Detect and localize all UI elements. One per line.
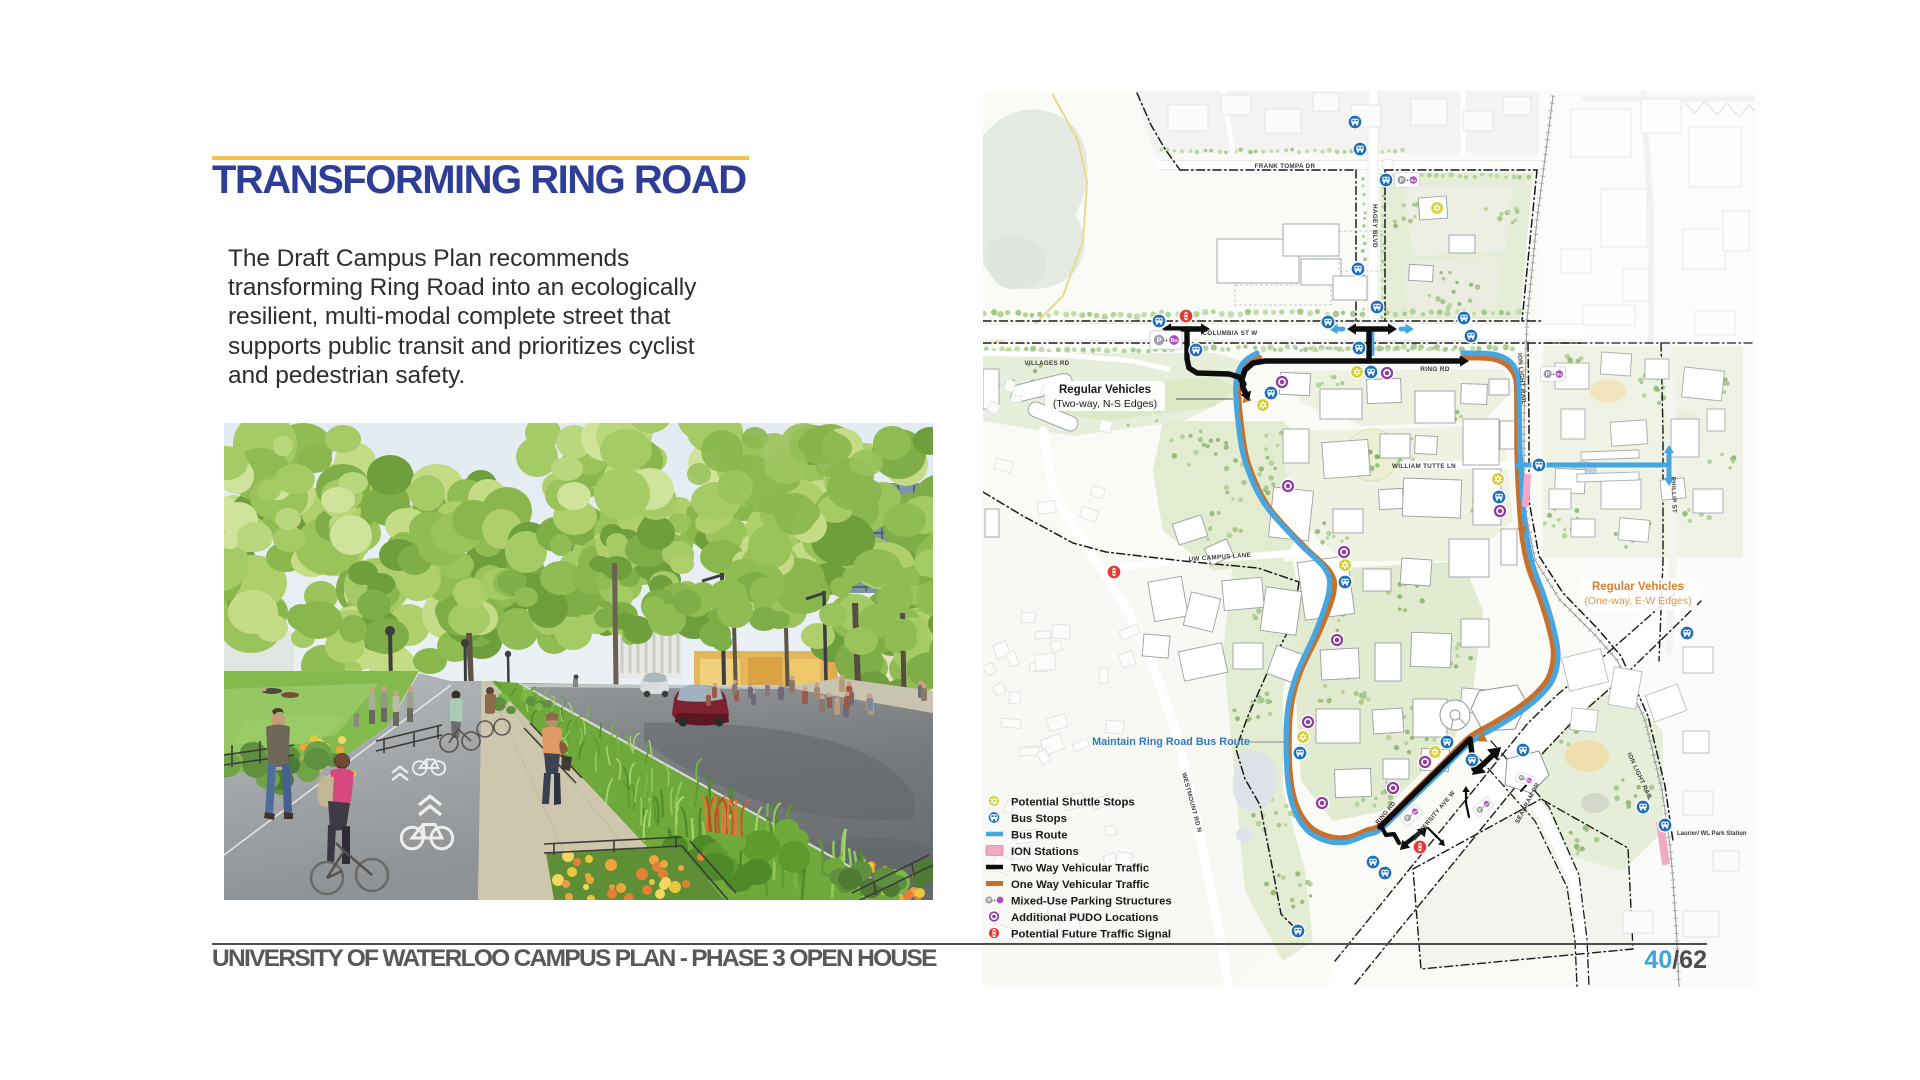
svg-text:Bus Stops: Bus Stops xyxy=(1011,813,1067,825)
svg-text:Regular Vehicles: Regular Vehicles xyxy=(1059,384,1151,396)
svg-text:Additional PUDO Locations: Additional PUDO Locations xyxy=(1011,912,1159,924)
svg-text:Potential Future Traffic Signa: Potential Future Traffic Signal xyxy=(1011,929,1171,941)
svg-text:WILLIAM TUTTE LN: WILLIAM TUTTE LN xyxy=(1392,463,1456,470)
svg-text:One Way Vehicular Traffic: One Way Vehicular Traffic xyxy=(1011,879,1149,891)
svg-text:(Two-way, N-S Edges): (Two-way, N-S Edges) xyxy=(1053,398,1157,410)
svg-text:+: + xyxy=(1164,337,1168,344)
svg-text:Laurier/ WL Park Station: Laurier/ WL Park Station xyxy=(1677,831,1747,837)
svg-text:Bu: Bu xyxy=(1557,372,1563,377)
svg-text:Potential Shuttle Stops: Potential Shuttle Stops xyxy=(1011,797,1135,809)
svg-text:RING RD: RING RD xyxy=(1420,366,1450,373)
svg-text:COLUMBIA ST W: COLUMBIA ST W xyxy=(1202,330,1257,337)
svg-text:ION Stations: ION Stations xyxy=(1011,846,1079,858)
svg-text:VILLAGES RD: VILLAGES RD xyxy=(1025,360,1070,367)
svg-text:+: + xyxy=(993,898,996,904)
svg-text:(One-way, E-W Edges): (One-way, E-W Edges) xyxy=(1584,595,1691,607)
svg-text:FRANK TOMPA DR: FRANK TOMPA DR xyxy=(1255,163,1316,170)
svg-text:Bus Route: Bus Route xyxy=(1011,830,1068,842)
svg-text:Maintain Ring Road Bus Route: Maintain Ring Road Bus Route xyxy=(1092,736,1250,748)
svg-text:Bu: Bu xyxy=(1411,178,1417,183)
svg-text:HAGEY BLVD: HAGEY BLVD xyxy=(1371,204,1378,248)
svg-text:P: P xyxy=(1157,336,1162,345)
svg-text:Bu: Bu xyxy=(1171,338,1178,344)
svg-text:+: + xyxy=(1406,178,1409,184)
svg-text:P: P xyxy=(1546,372,1550,378)
svg-text:+: + xyxy=(1552,372,1555,378)
svg-text:Mixed-Use Parking Structures: Mixed-Use Parking Structures xyxy=(1011,896,1172,908)
svg-text:Regular Vehicles: Regular Vehicles xyxy=(1592,581,1684,593)
svg-text:P: P xyxy=(1400,178,1404,184)
svg-text:Two Way Vehicular Traffic: Two Way Vehicular Traffic xyxy=(1011,863,1149,875)
svg-text:PHILLIP ST: PHILLIP ST xyxy=(1669,477,1677,513)
